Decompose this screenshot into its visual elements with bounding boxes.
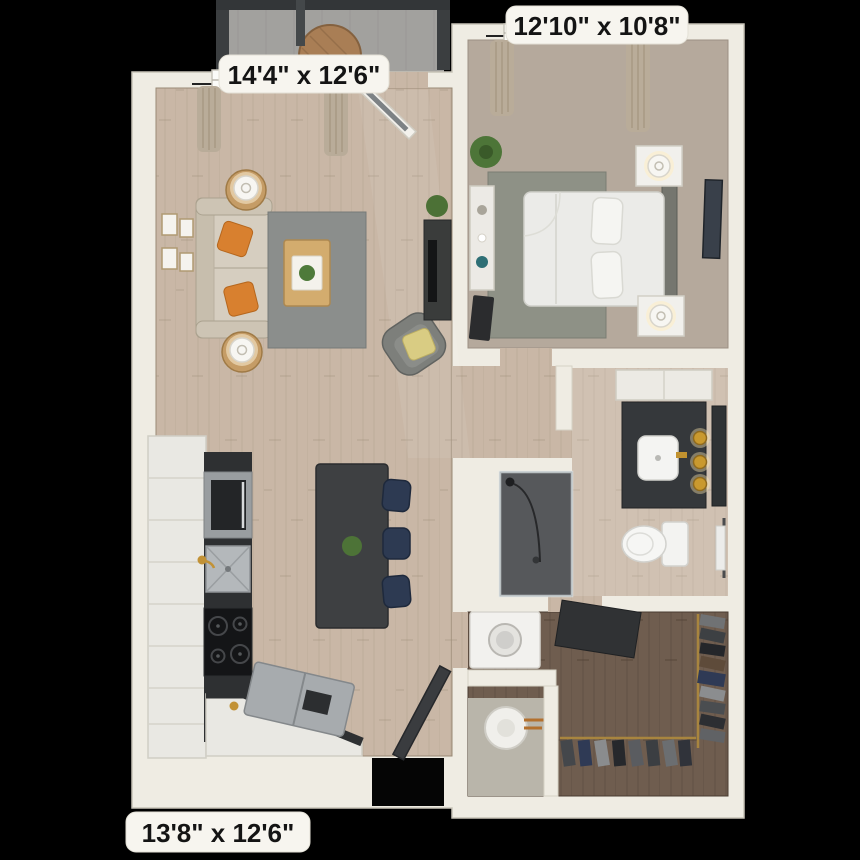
pillow-2 — [591, 251, 623, 299]
kitchen-dimensions-text: 13'8" x 12'6" — [142, 818, 295, 848]
nightstand-lamp-1 — [648, 155, 670, 177]
pendant-light-3 — [694, 478, 707, 491]
kitchen-cabinets-left — [148, 436, 206, 758]
shower-head — [506, 478, 515, 487]
prep-faucet — [230, 702, 239, 711]
bedroom-door-opening — [500, 348, 552, 368]
stool-2 — [383, 528, 410, 559]
orange-pillow-2 — [223, 281, 259, 317]
washer — [470, 612, 540, 668]
pendant-light-1 — [694, 432, 707, 445]
curtain-right — [324, 86, 348, 156]
pendant-light-2 — [694, 456, 707, 469]
bedroom-dimensions-text: 12'10" x 10'8" — [513, 11, 680, 41]
laundry-nook-wall — [468, 670, 556, 686]
towel — [716, 526, 725, 570]
console-plant — [426, 195, 448, 217]
coffee-table-plant — [299, 265, 315, 281]
utility-nook-wall — [544, 686, 558, 796]
stool-3 — [382, 575, 412, 608]
kitchen-sink — [198, 546, 251, 592]
dresser — [469, 186, 494, 341]
bedroom-curtain-right — [626, 40, 650, 132]
side-table-bottom — [222, 332, 262, 372]
toilet — [622, 522, 688, 566]
island-plant — [342, 536, 362, 556]
curtain-left — [197, 86, 221, 152]
living-room-dimensions-text: 14'4" x 12'6" — [228, 60, 381, 90]
floorplan-svg: 12'10" x 10'8" 14'4" x 12'6" 13'8" x 12'… — [0, 0, 860, 860]
dresser-lamp — [477, 205, 487, 215]
coffee-table — [284, 240, 330, 306]
side-table-top — [226, 170, 266, 210]
dimension-label-kitchen: 13'8" x 12'6" — [126, 812, 310, 852]
walk-in-shower — [500, 472, 572, 596]
sofa — [196, 198, 272, 338]
bedroom-wall-art — [703, 180, 723, 259]
entry-door-opening — [372, 758, 444, 806]
towel-bar — [716, 518, 725, 578]
nightstand-bottom — [638, 296, 684, 336]
nightstand-top — [636, 146, 682, 186]
floorplan-canvas: 12'10" x 10'8" 14'4" x 12'6" 13'8" x 12'… — [0, 0, 860, 860]
stool-1 — [382, 479, 412, 512]
nightstand-lamp-2 — [650, 305, 672, 327]
balcony-railing-post — [296, 0, 305, 46]
balcony-railing-right — [437, 0, 450, 70]
tv — [428, 240, 437, 302]
dimension-label-bedroom: 12'10" x 10'8" — [506, 6, 688, 44]
kitchen-island — [316, 464, 411, 628]
laundry-nook-opening — [452, 612, 468, 668]
dimension-label-living-room: 14'4" x 12'6" — [219, 55, 389, 93]
vanity-faucet — [676, 452, 687, 458]
table-lamp-2 — [230, 338, 254, 362]
wall-oven — [204, 472, 252, 538]
vanity-mirror — [712, 406, 726, 506]
balcony-railing-top — [216, 0, 450, 10]
pillow-1 — [591, 197, 623, 245]
cooktop — [204, 608, 252, 676]
bedroom-curtain-left — [490, 40, 514, 116]
table-lamp-1 — [234, 176, 258, 200]
hall-wall-stub — [556, 366, 572, 430]
teal-vase — [476, 256, 488, 268]
shower-drain — [533, 557, 540, 564]
hallway-floor — [452, 366, 572, 458]
